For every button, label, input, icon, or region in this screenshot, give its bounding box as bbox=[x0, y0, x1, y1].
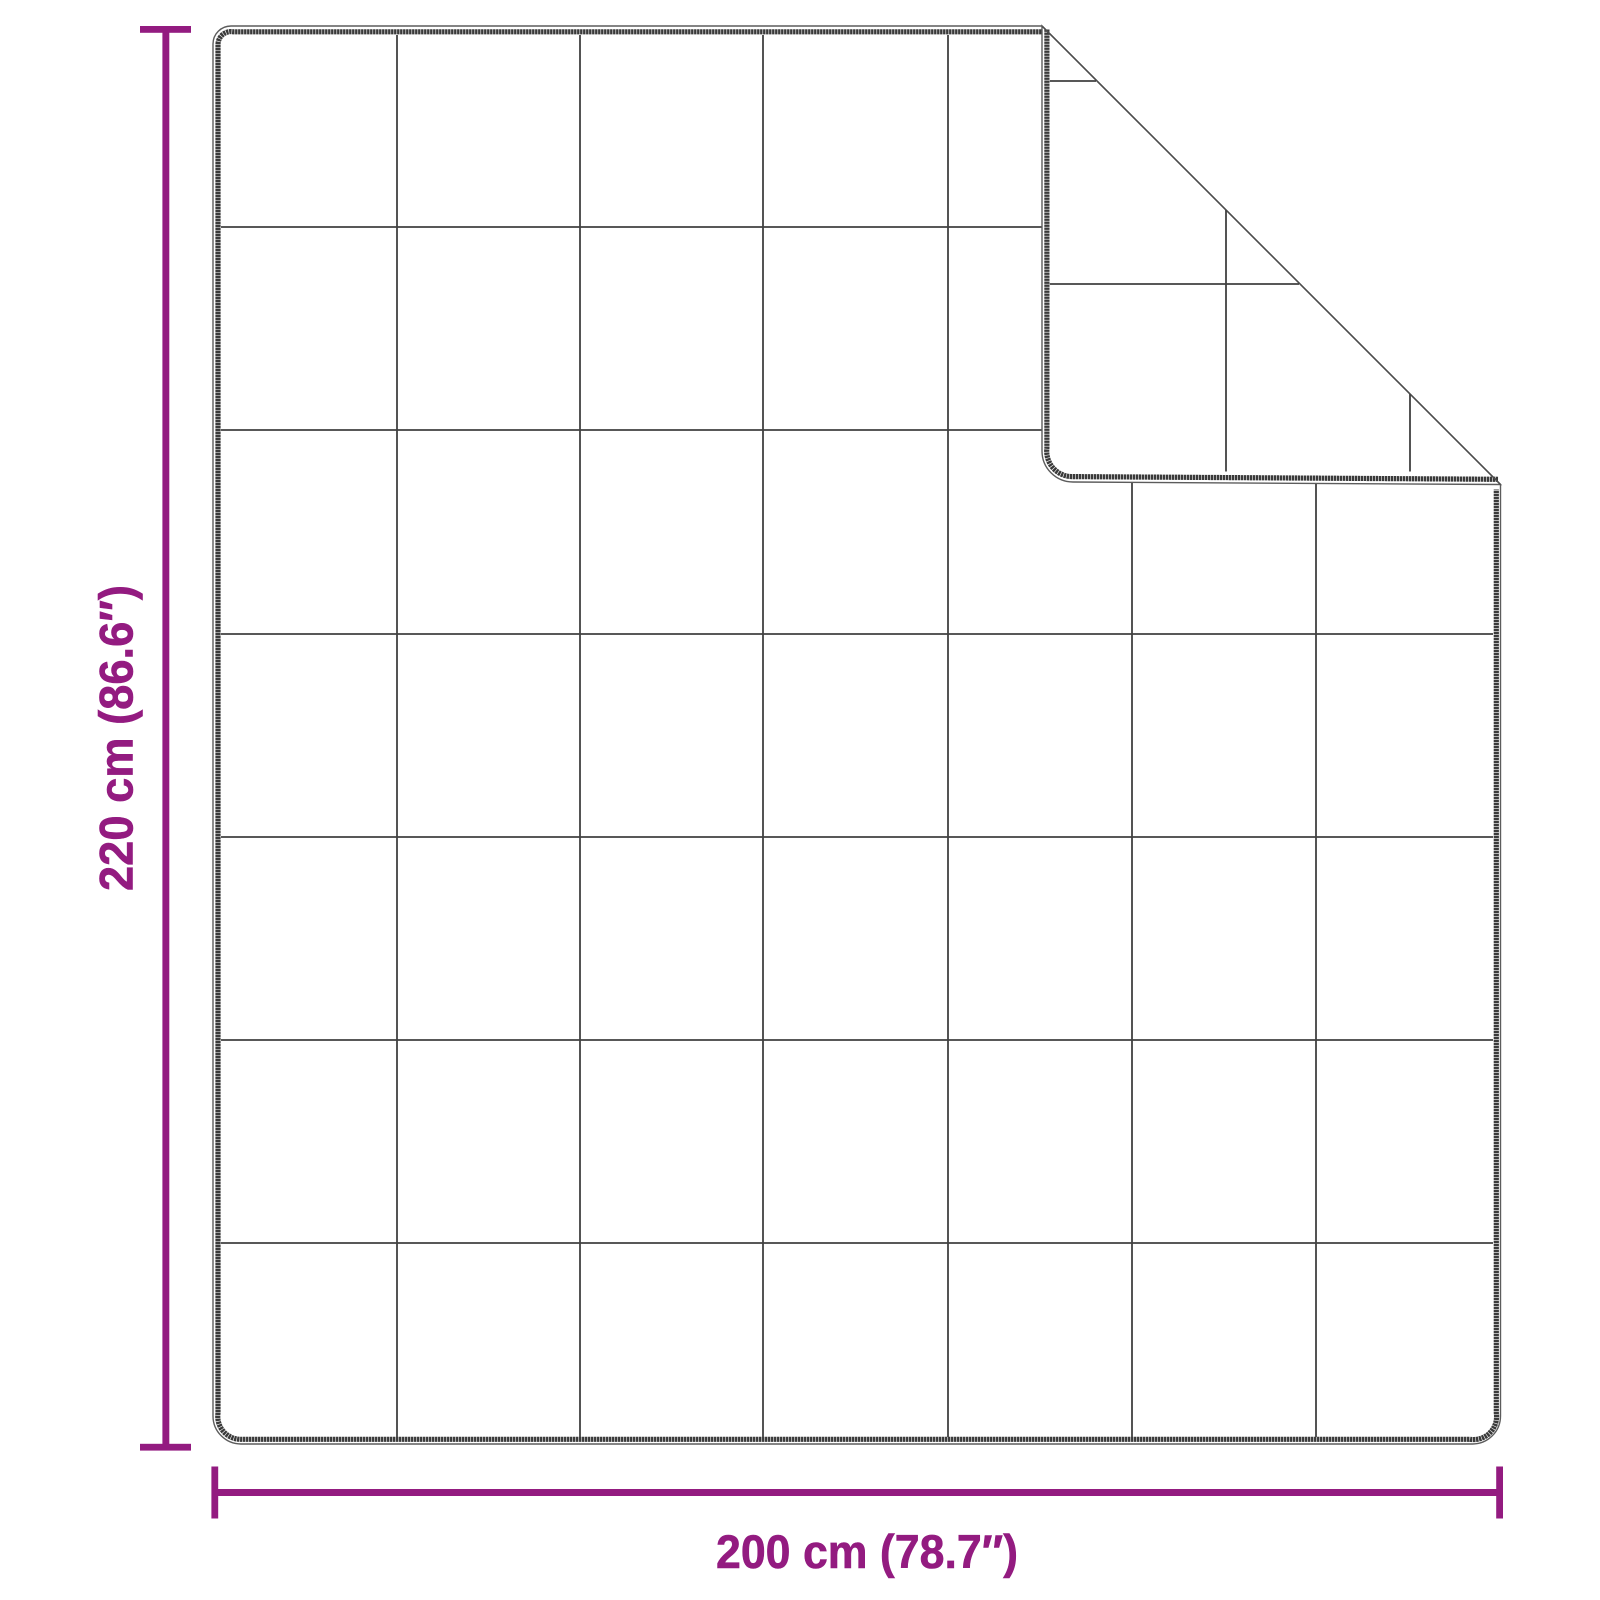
svg-text:220 cm (86.6″): 220 cm (86.6″) bbox=[91, 585, 144, 891]
svg-text:200 cm (78.7″): 200 cm (78.7″) bbox=[716, 1526, 1018, 1579]
